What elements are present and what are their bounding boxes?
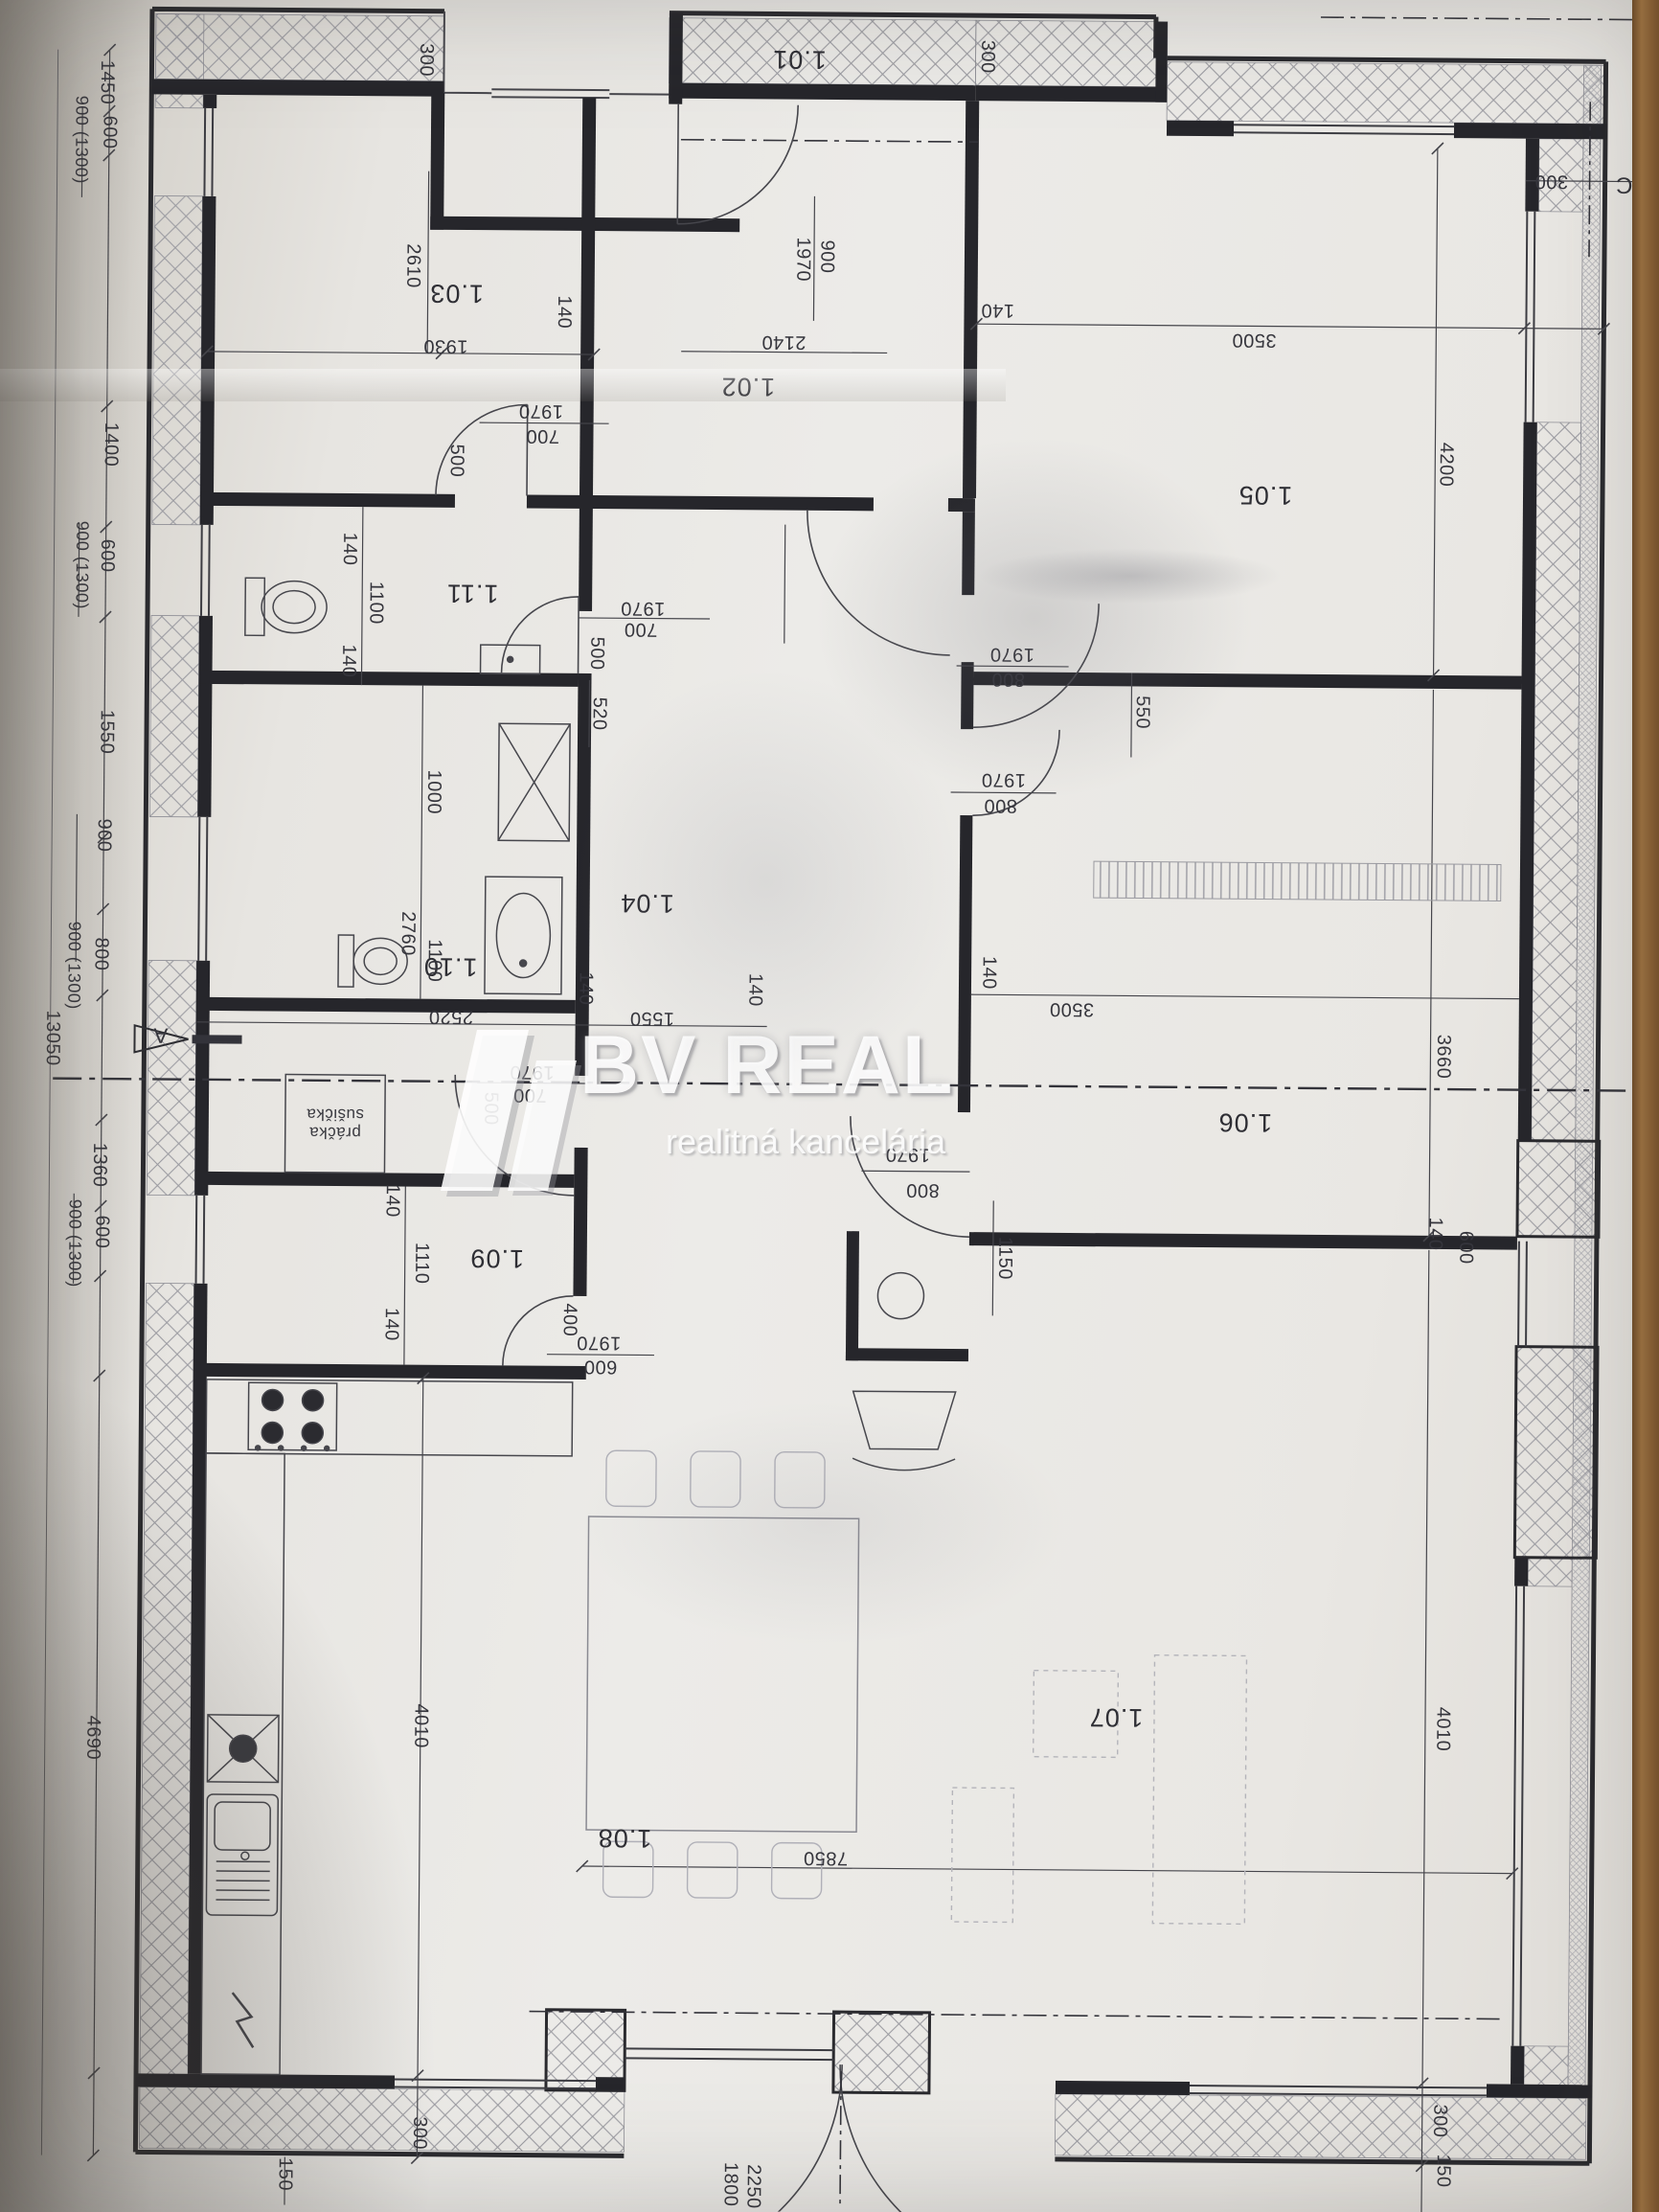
dim-label: 800 <box>991 668 1025 690</box>
dim-label: 140 <box>337 645 359 678</box>
dim-label: 900 (1300) <box>63 922 84 1010</box>
dim-label: 140 <box>381 1184 403 1218</box>
dim-label: 3660 <box>1432 1035 1454 1080</box>
dim-label: 4200 <box>1435 443 1457 488</box>
dim-label: 140 <box>574 971 596 1005</box>
watermark-tagline: realitná kancelária <box>666 1122 945 1162</box>
dim-label: 700 <box>526 424 559 446</box>
dim-label: 140 <box>553 295 575 329</box>
room-label-101: 1.01 <box>772 44 827 74</box>
room-label-106: 1.06 <box>1217 1107 1272 1137</box>
dim-label: 800 <box>90 937 112 970</box>
room-label-107: 1.07 <box>1089 1702 1144 1732</box>
dim-label: 1800 <box>718 2162 740 2207</box>
room-label-103: 1.03 <box>429 278 484 308</box>
room-label-105: 1.05 <box>1239 480 1293 510</box>
dim-label: 1550 <box>95 710 117 755</box>
dim-label: 150 <box>1432 2155 1454 2188</box>
dim-label: 4690 <box>81 1716 103 1761</box>
porch-edges <box>443 11 670 99</box>
watermark-brand: BV REAL <box>580 1018 954 1113</box>
dim-label: 800 <box>984 794 1017 816</box>
appliance-label: práčka sušička <box>307 1106 364 1142</box>
room-label-109: 1.09 <box>469 1243 524 1273</box>
room-label-104: 1.04 <box>620 888 674 918</box>
dim-label: 1970 <box>621 597 666 619</box>
dim-label: 900 (1300) <box>71 96 92 184</box>
dim-label: 2610 <box>401 243 423 288</box>
dim-label: 13050 <box>41 1010 63 1065</box>
dim-label: 1150 <box>993 1237 1015 1280</box>
dim-label: 900 (1300) <box>64 1199 85 1288</box>
floorplan-photo: 1450 900 (1300) 600 1400 900 (1300) 600 … <box>0 0 1659 2212</box>
dim-label: 500 <box>585 637 607 671</box>
dim-label: 600 <box>96 539 118 573</box>
washer-label: práčka <box>307 1124 364 1142</box>
dim-label: 1970 <box>989 643 1034 665</box>
grid-marker-c: C <box>1616 171 1633 197</box>
dim-label: 900 <box>93 819 115 853</box>
dim-label: 700 <box>624 618 657 640</box>
dim-label: 4010 <box>409 1703 431 1748</box>
dim-label: 140 <box>981 299 1014 321</box>
dim-label: 1000 <box>422 769 444 814</box>
watermark: BV REAL realitná kancelária <box>421 1011 1034 1202</box>
section-marker-label: A <box>153 1022 168 1047</box>
dim-label: 7850 <box>803 1846 848 1868</box>
dim-label: 300 <box>1428 2105 1450 2138</box>
dim-label: 150 <box>274 2157 296 2191</box>
dim-label: 4010 <box>1431 1707 1453 1752</box>
dim-label: 600 <box>583 1355 617 1377</box>
dim-label: 1100 <box>364 582 386 625</box>
dim-label: 140 <box>338 533 360 566</box>
room-label-102: 1.02 <box>720 372 775 401</box>
dim-label: 400 <box>558 1303 580 1336</box>
dim-label: 1360 <box>88 1143 110 1188</box>
dim-label: 1110 <box>410 1243 432 1285</box>
dim-label: 500 <box>445 444 467 477</box>
dim-label: 140 <box>1423 1217 1445 1250</box>
dim-label: 1970 <box>577 1331 622 1353</box>
dim-label: 300 <box>976 40 998 74</box>
room-label-108: 1.08 <box>598 1823 652 1853</box>
dim-label: 1970 <box>791 237 813 282</box>
dim-label: 900 <box>815 239 837 273</box>
dim-label: 550 <box>1131 696 1153 729</box>
dim-label: 1970 <box>981 768 1026 790</box>
dim-label: 600 <box>98 116 120 149</box>
dim-label: 2140 <box>761 331 807 353</box>
dim-label: 2760 <box>397 911 419 956</box>
dim-label: 600 <box>1454 1231 1476 1265</box>
dim-label: 300 <box>415 43 437 77</box>
dryer-label: sušička <box>307 1106 364 1124</box>
room-label-111: 1.11 <box>446 578 499 607</box>
dim-label: 300 <box>1534 170 1568 192</box>
dim-label: 140 <box>380 1308 402 1341</box>
dim-label: 600 <box>90 1216 112 1249</box>
dim-label: 520 <box>588 697 610 731</box>
dim-label: 3500 <box>1232 329 1277 351</box>
dim-label: 2250 <box>741 2164 763 2209</box>
dim-label: 1450 <box>96 60 118 105</box>
dim-label: 140 <box>743 973 765 1007</box>
dim-label: 140 <box>977 956 999 990</box>
dim-label: 900 (1300) <box>72 521 93 609</box>
bvreal-logo-icon <box>421 1011 584 1202</box>
dim-label: 1100 <box>423 939 445 982</box>
dim-label: 3500 <box>1049 997 1094 1019</box>
dim-label: 300 <box>408 2116 430 2150</box>
dim-label: 1930 <box>423 334 468 356</box>
dim-label: 1400 <box>100 422 122 467</box>
dim-label: 1970 <box>518 399 563 422</box>
